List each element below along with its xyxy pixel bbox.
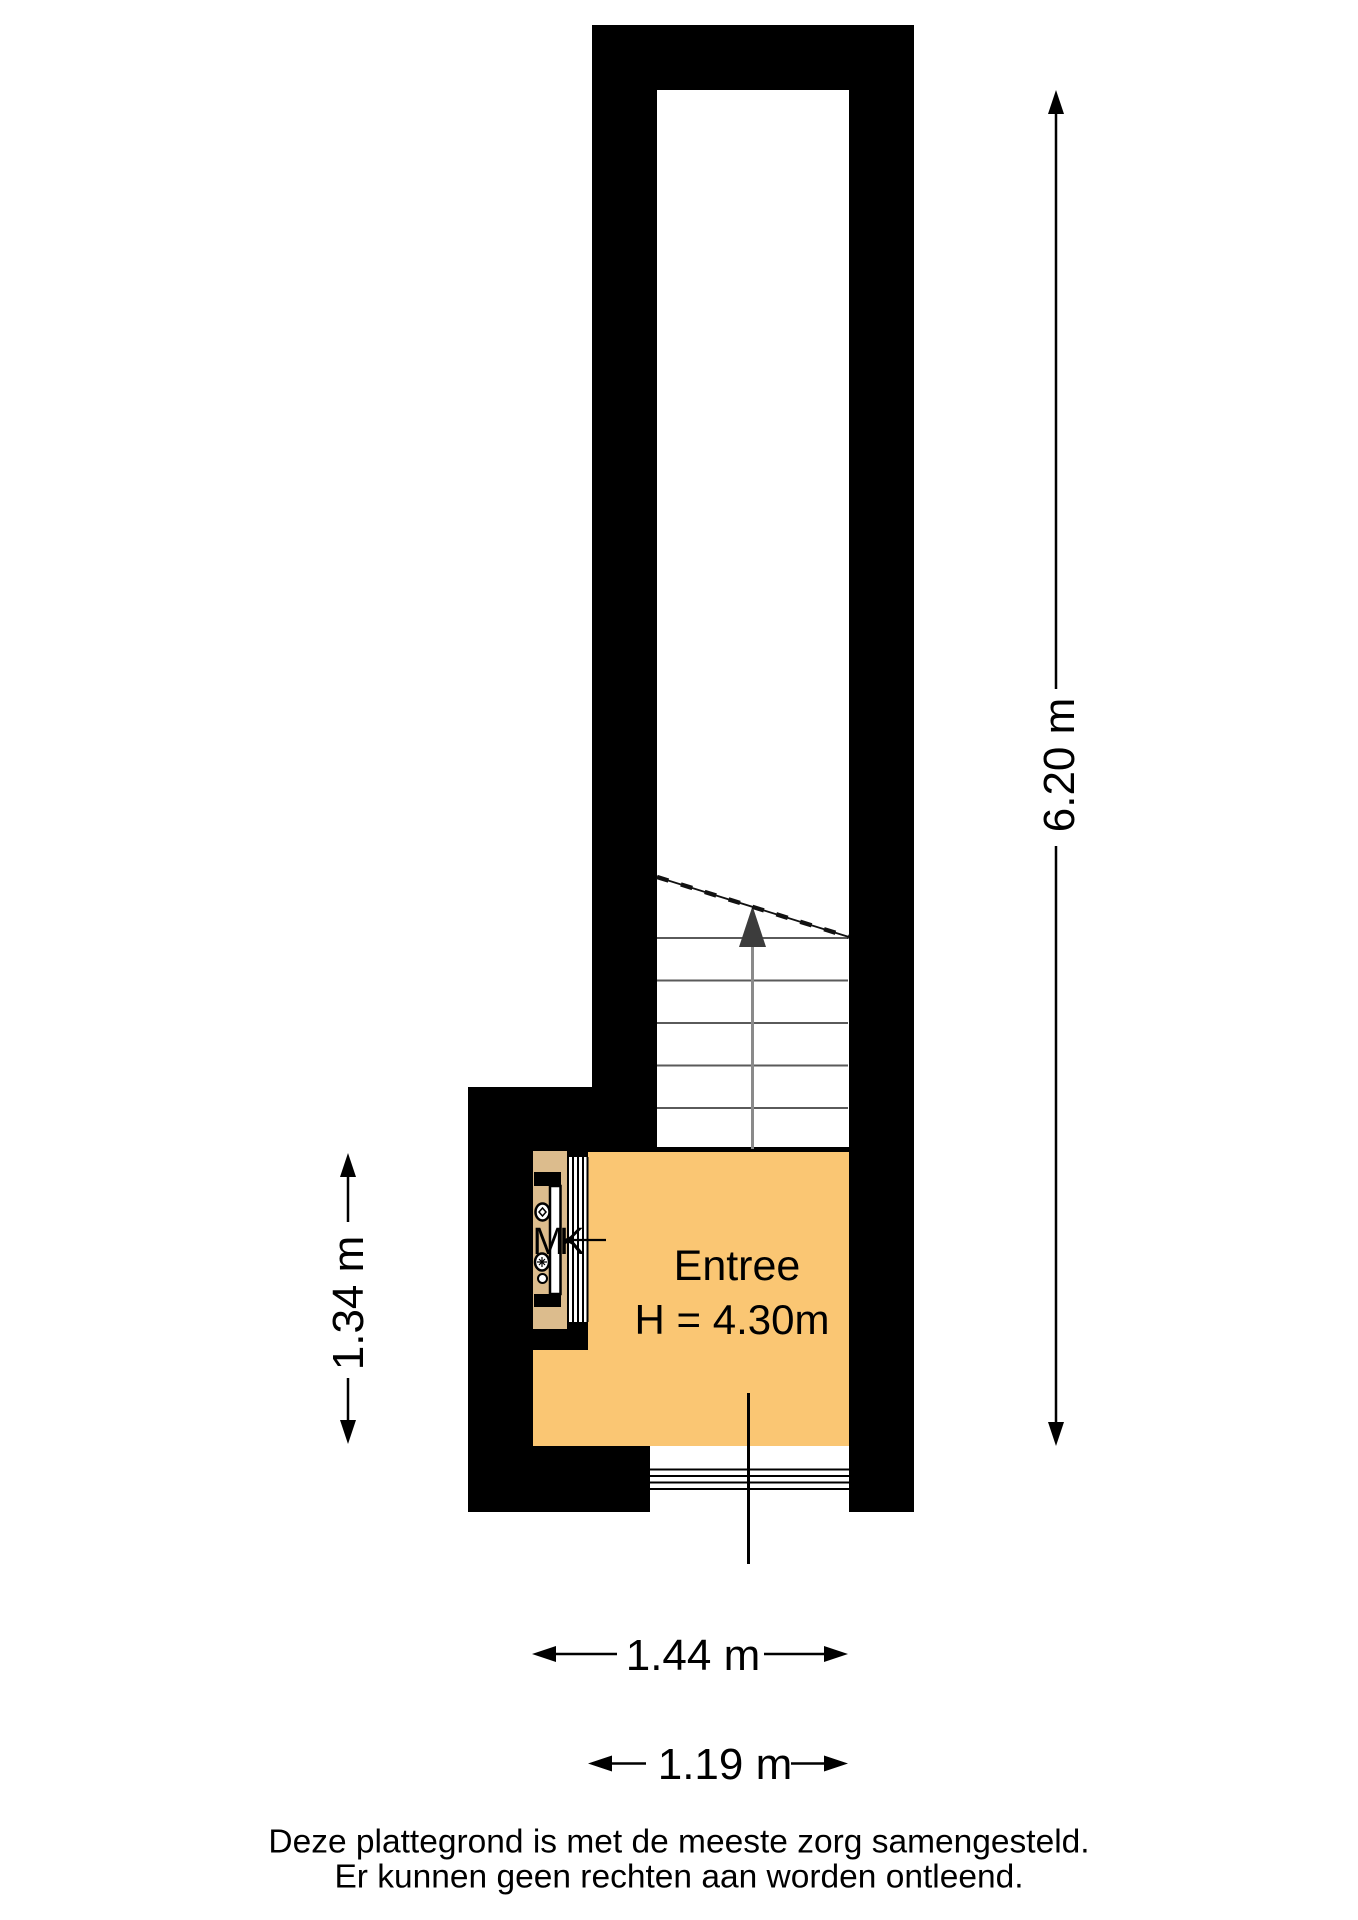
svg-text:1.34 m: 1.34 m	[324, 1236, 373, 1371]
svg-text:Er kunnen geen rechten aan wor: Er kunnen geen rechten aan worden ontlee…	[334, 1859, 1023, 1896]
svg-text:Entree: Entree	[674, 1242, 801, 1290]
svg-text:Deze plattegrond is met de mee: Deze plattegrond is met de meeste zorg s…	[268, 1824, 1089, 1861]
svg-text:6.20 m: 6.20 m	[1035, 698, 1084, 833]
svg-text:1.19 m: 1.19 m	[658, 1740, 793, 1789]
svg-text:1.44 m: 1.44 m	[626, 1631, 761, 1680]
svg-text:MK: MK	[533, 1221, 585, 1263]
svg-text:H = 4.30m: H = 4.30m	[635, 1296, 830, 1343]
